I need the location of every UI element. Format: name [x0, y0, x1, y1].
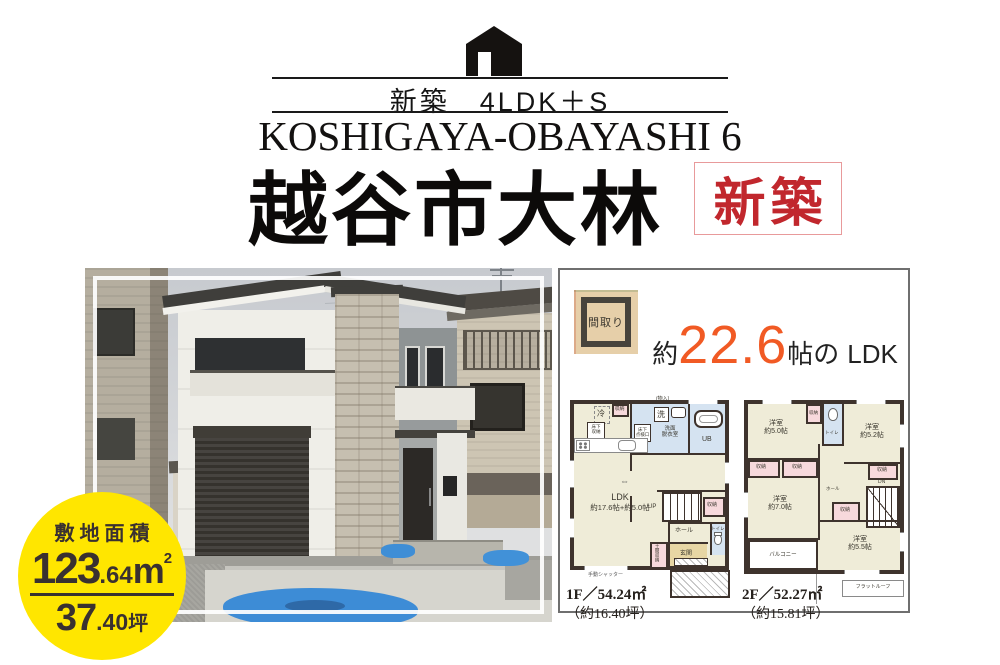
room4-size: 約5.5帖 [848, 544, 872, 551]
garage-shutter [195, 438, 309, 558]
tsubo-unit: 坪 [128, 607, 148, 636]
site-area-label: 敷地面積 [50, 517, 155, 546]
blue-tarp [483, 550, 529, 566]
door-handle [429, 488, 431, 506]
mono-label: (物入) [656, 397, 669, 403]
fridge-label: 冷 [597, 409, 605, 418]
tv-antenna [490, 269, 514, 271]
floorplan-2f: トイレ 洋室 約5.0帖 収納 洋室 約5.2帖 収納 収納 洋室 約7 [744, 400, 904, 605]
area-integer: 123 [32, 546, 99, 592]
shutter-note: 手動シャッター [588, 573, 623, 579]
area-unit: m [133, 550, 164, 592]
tsubo-fraction: .40 [96, 609, 128, 636]
ldk-suffix-jo: 帖の [787, 334, 839, 371]
balcony-parapet [190, 370, 335, 396]
tarp-fold [285, 600, 345, 612]
blue-tarp [381, 544, 415, 558]
room1-name: 洋室 [769, 420, 783, 427]
floorplan-1f: 洗 (物入) 床下 点検口 洗面 脱衣室 UB 収納 冷 [570, 400, 729, 610]
new-construction-badge: 新築 [694, 162, 842, 235]
badge-label: 新築 [708, 161, 827, 236]
header-rule-top [272, 77, 728, 79]
site-area-value: 123 .64 m 2 [30, 546, 174, 596]
hall-label: ホール [675, 528, 693, 535]
dn-label: DN [878, 480, 885, 486]
neighbor-left-window [97, 418, 135, 460]
ldk-room-label: LDK [580, 492, 660, 502]
toilet2-label: トイレ [825, 430, 839, 435]
up-label: UP [648, 504, 656, 511]
white-balcony-band [395, 386, 475, 420]
neighbor-right-lower [457, 495, 552, 528]
flyer-page: 新築 4LDK＋S KOSHIGAYA-OBAYASHI 6 越谷市大林 新築 [0, 0, 1000, 665]
ldk-prefix: 約 [652, 334, 678, 371]
house-icon-door [478, 52, 491, 76]
flatroof-label: フラットルーフ [842, 585, 904, 591]
toilet-label: トイレ [711, 526, 725, 531]
neighbor-right-band [457, 473, 552, 495]
neighbor-left-window [93, 308, 135, 356]
ldk-suffix-ldk: LDK [847, 339, 898, 370]
neighbor-right-balcony [463, 330, 552, 370]
closet-label: 収納 [615, 407, 625, 413]
neighbor-right-window [470, 383, 525, 431]
page-title: 越谷市大林 [248, 146, 663, 262]
genkan-label: 玄関 [680, 551, 692, 558]
slide-door-arrow: ⇔ [620, 476, 629, 486]
tv-antenna [492, 275, 512, 277]
room3-size: 約7.0帖 [768, 504, 792, 511]
washer-label: 洗 [657, 410, 665, 419]
room4-name: 洋室 [853, 536, 867, 543]
room2-size: 約5.2帖 [860, 432, 884, 439]
room1-size: 約5.0帖 [764, 428, 788, 435]
stone-accent-column [335, 294, 399, 560]
floorplan-panel: 間取り 約 22.6 帖の LDK 洗 (物入) 床下 点検口 [558, 268, 910, 613]
site-area-badge: 敷地面積 123 .64 m 2 37 .40 坪 [18, 492, 186, 660]
house-icon [466, 26, 522, 76]
ldk-headline: 約 22.6 帖の LDK [650, 314, 900, 376]
madori-stamp-label: 間取り [574, 314, 638, 330]
ldk-value: 22.6 [678, 314, 787, 376]
shutter-housing [193, 426, 311, 438]
room2-name: 洋室 [865, 424, 879, 431]
balcony-label: バルコニー [748, 552, 818, 558]
site-area-tsubo: 37 .40 坪 [56, 599, 148, 637]
tsubo-integer: 37 [56, 599, 96, 637]
hall2-label: ホール [826, 486, 840, 491]
gravel-right [505, 560, 552, 600]
area-fraction: .64 [99, 562, 132, 590]
room3-name: 洋室 [773, 496, 787, 503]
madori-stamp: 間取り [574, 290, 638, 354]
doma-label: 土間収納 [655, 544, 660, 562]
area-exponent: 2 [164, 550, 172, 567]
ub-label: UB [702, 436, 712, 444]
post-box [443, 476, 457, 496]
